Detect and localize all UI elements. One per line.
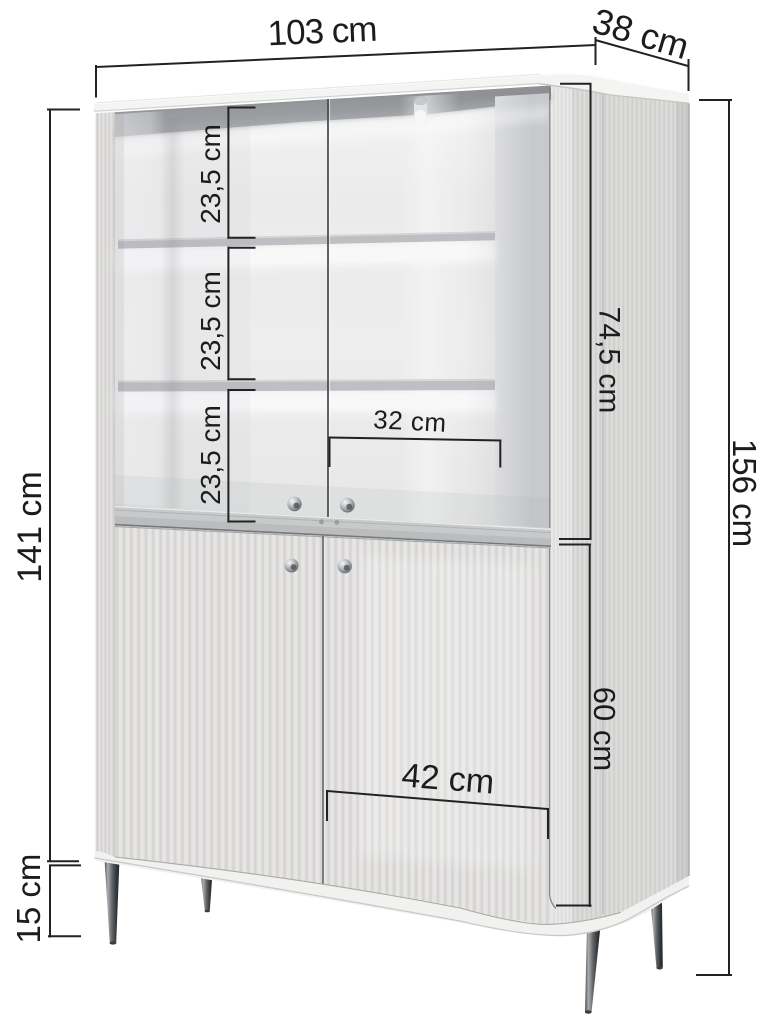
svg-text:32 cm: 32 cm [373, 404, 448, 438]
svg-text:23,5 cm: 23,5 cm [195, 405, 226, 505]
svg-text:74,5 cm: 74,5 cm [593, 307, 626, 414]
svg-text:60 cm: 60 cm [587, 687, 622, 771]
svg-text:141 cm: 141 cm [11, 471, 49, 583]
svg-text:15 cm: 15 cm [10, 854, 47, 944]
svg-text:23,5 cm: 23,5 cm [195, 271, 226, 371]
svg-text:42 cm: 42 cm [400, 756, 495, 801]
svg-text:103 cm: 103 cm [267, 10, 377, 54]
svg-text:156 cm: 156 cm [726, 439, 763, 547]
svg-text:23,5 cm: 23,5 cm [195, 124, 226, 224]
